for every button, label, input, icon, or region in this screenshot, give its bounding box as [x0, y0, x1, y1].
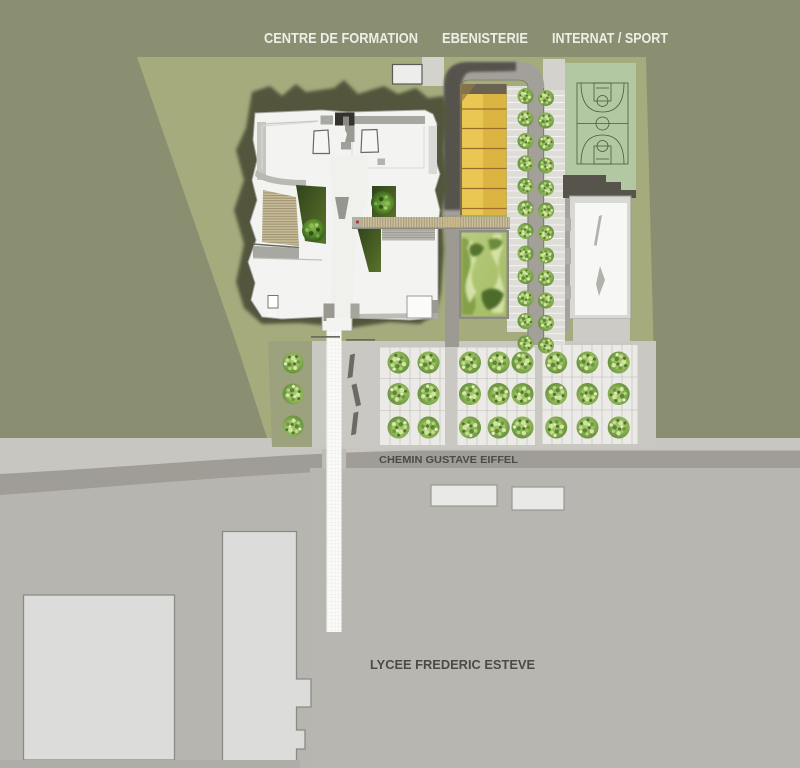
svg-text:CENTRE DE FORMATION: CENTRE DE FORMATION	[264, 30, 418, 47]
svg-text:INTERNAT / SPORT: INTERNAT / SPORT	[552, 30, 668, 47]
svg-text:EBENISTERIE: EBENISTERIE	[442, 30, 528, 47]
svg-text:LYCEE FREDERIC ESTEVE: LYCEE FREDERIC ESTEVE	[370, 658, 535, 672]
svg-text:CHEMIN GUSTAVE EIFFEL: CHEMIN GUSTAVE EIFFEL	[379, 454, 519, 466]
